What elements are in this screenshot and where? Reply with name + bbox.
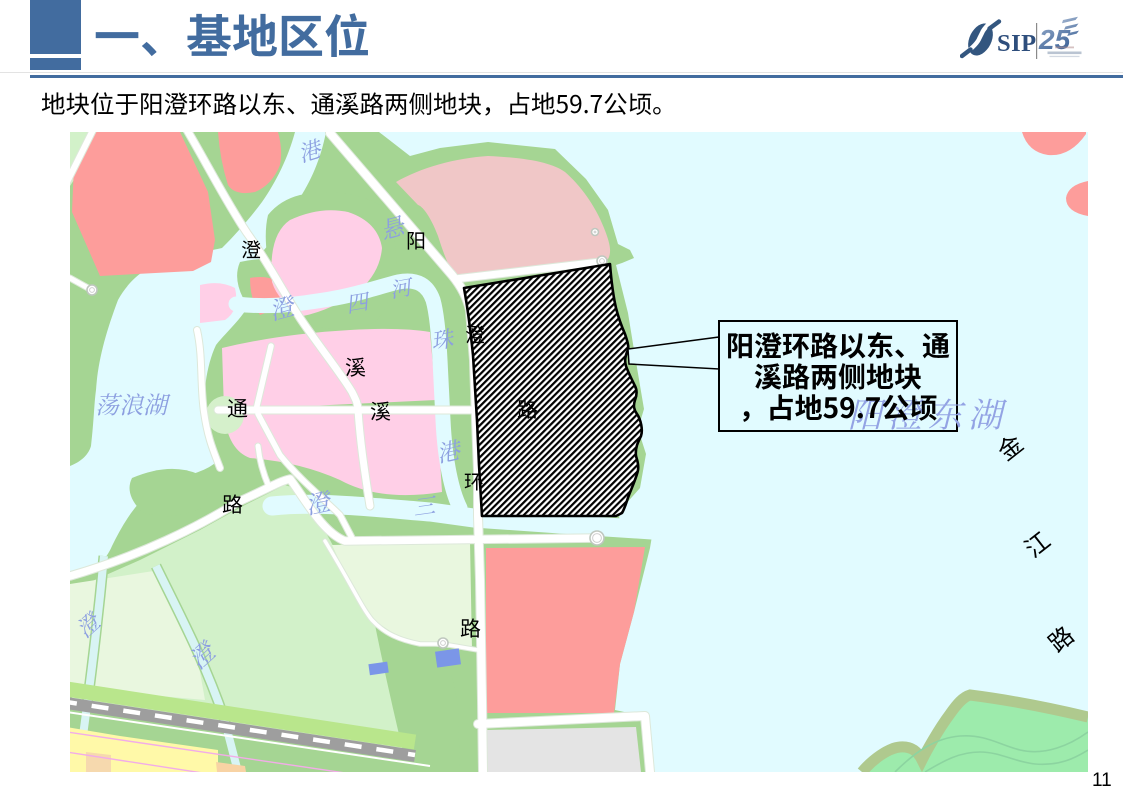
svg-text:SIP: SIP — [997, 30, 1037, 57]
svg-text:路: 路 — [222, 489, 243, 519]
svg-text:通: 通 — [227, 393, 248, 423]
svg-text:路: 路 — [460, 613, 481, 643]
svg-text:环: 环 — [464, 466, 484, 495]
svg-text:阳: 阳 — [406, 225, 426, 254]
svg-text:溪: 溪 — [370, 396, 391, 426]
svg-text:路: 路 — [517, 394, 538, 424]
svg-text:，占地59.7公顷: ，占地59.7公顷 — [739, 387, 938, 427]
svg-text:溪: 溪 — [345, 352, 366, 382]
svg-text:澄: 澄 — [465, 319, 485, 348]
svg-text:澄: 澄 — [241, 234, 261, 263]
svg-text:荡浪湖: 荡浪湖 — [95, 385, 171, 420]
